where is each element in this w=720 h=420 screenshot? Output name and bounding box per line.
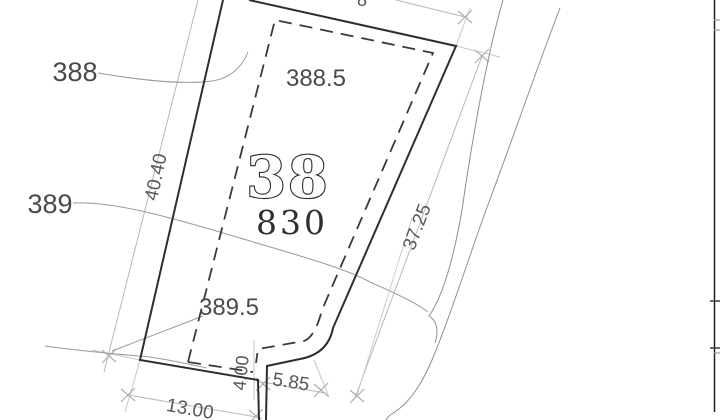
dimension-line-top-partial	[396, 0, 465, 17]
tick-top-2	[475, 49, 489, 63]
road-edge-inner	[429, 0, 503, 343]
dimension-label-13-00: 13.00	[165, 395, 215, 420]
dimension-label-top-partial: 8	[357, 0, 367, 10]
elevation-label-389: 389	[27, 189, 72, 219]
contour-line-388	[98, 52, 248, 82]
labels: 388 389 388.5 389.5 38 830 40.40 37.25 4…	[27, 0, 435, 420]
dimension-label-37-25: 37.25	[399, 201, 436, 253]
elevation-label-388: 388	[52, 57, 97, 87]
extension-line-top-corner-right	[456, 46, 500, 57]
dimension-label-4-00: 4.00	[229, 355, 253, 392]
dimension-label-5-85: 5.85	[271, 369, 311, 396]
tick-37-25-bottom	[350, 389, 364, 403]
contour-leader-389-5	[112, 316, 203, 351]
parcel-area: 830	[256, 203, 328, 242]
dimension-label-40-40: 40.40	[141, 152, 171, 203]
elevation-label-388-5: 388.5	[286, 65, 346, 92]
tick-13-00-right	[249, 409, 263, 420]
site-plan-drawing: 388 389 388.5 389.5 38 830 40.40 37.25 4…	[0, 0, 720, 420]
elevation-label-389-5: 389.5	[199, 294, 259, 321]
extension-line-bottom-left-down	[125, 360, 140, 412]
site-plan-sheet: 388 389 388.5 389.5 38 830 40.40 37.25 4…	[0, 0, 720, 420]
parcel-number: 38	[246, 144, 329, 211]
table-border	[710, 0, 720, 412]
